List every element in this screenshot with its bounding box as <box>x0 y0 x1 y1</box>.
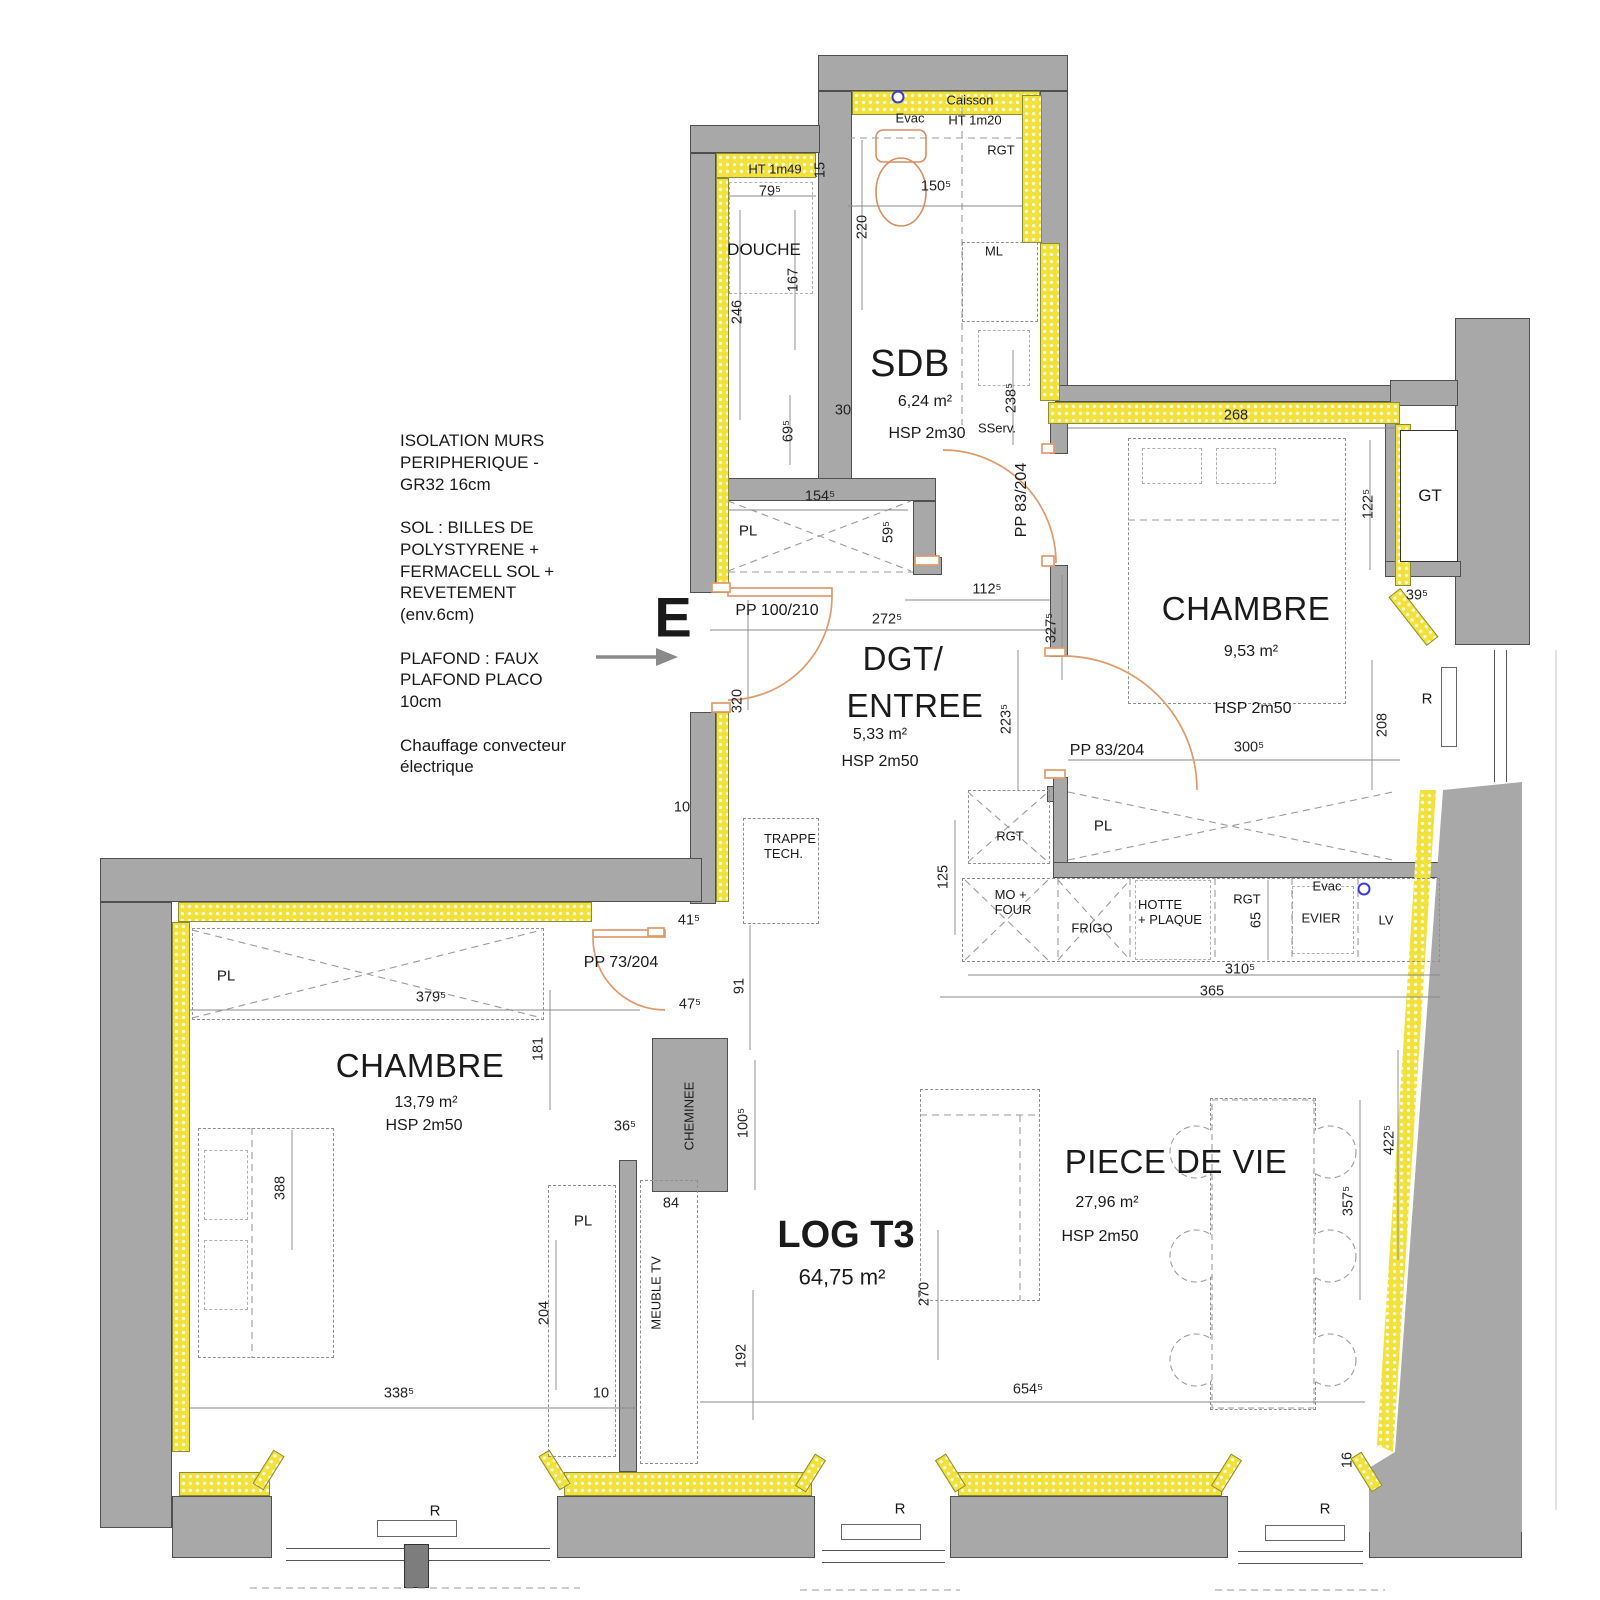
dim-300-5: 300⁵ <box>1234 740 1264 757</box>
room-title-dgt-1: DGT/ <box>863 640 944 678</box>
label-cheminee: CHEMINEE <box>683 1082 698 1151</box>
label-rgt-sdb: RGT <box>987 144 1014 159</box>
jamb <box>648 928 664 936</box>
dim-122-5: 122⁵ <box>1361 489 1378 519</box>
porte-entree-vantail <box>728 588 832 596</box>
room-height-sdb: HSP 2m30 <box>888 425 965 443</box>
label-hotte: HOTTE + PLAQUE <box>1138 898 1202 928</box>
jamb <box>712 703 730 712</box>
label-gt: GT <box>1418 486 1442 506</box>
dim-204: 204 <box>537 1301 554 1325</box>
label-radiateur-est: R <box>1422 690 1433 707</box>
room-area-sdb: 6,24 m² <box>898 393 952 411</box>
dim-181: 181 <box>531 1037 548 1061</box>
room-area-chambre-est: 9,53 m² <box>1224 643 1278 661</box>
notes-text: ISOLATION MURS PERIPHERIQUE - GR32 16cm … <box>400 430 600 778</box>
label-frigo: FRIGO <box>1071 922 1112 937</box>
dim-15: 15 <box>813 162 830 178</box>
jamb <box>915 556 939 565</box>
dim-220: 220 <box>855 215 872 239</box>
room-area-piece-de-vie: 27,96 m² <box>1075 1194 1138 1212</box>
dim-223-5: 223⁵ <box>999 704 1016 734</box>
dim-422-5: 422⁵ <box>1382 1125 1399 1155</box>
dim-150-5: 150⁵ <box>921 179 951 196</box>
dim-10-dgt: 10 <box>674 800 690 817</box>
dim-272-5: 272⁵ <box>872 612 902 629</box>
dim-65: 65 <box>1249 912 1266 928</box>
room-title-chambre-est: CHAMBRE <box>1162 590 1331 628</box>
wc-icon <box>876 130 926 226</box>
dim-208: 208 <box>1375 713 1392 737</box>
room-title-piece-de-vie: PIECE DE VIE <box>1065 1143 1287 1181</box>
dim-192: 192 <box>734 1344 751 1368</box>
dim-379-5: 379⁵ <box>416 990 446 1007</box>
dim-238-5: 238⁵ <box>1004 383 1021 413</box>
room-height-piece-de-vie: HSP 2m50 <box>1061 1228 1138 1246</box>
dim-327-5: 327⁵ <box>1044 613 1061 643</box>
dim-365: 365 <box>1200 984 1224 1001</box>
room-area-chambre-ouest: 13,79 m² <box>394 1094 457 1112</box>
door-label-entree: PP 100/210 <box>735 602 818 620</box>
logement-area: 64,75 m² <box>799 1264 886 1289</box>
label-pl-chambre-est: PL <box>1094 817 1112 834</box>
dim-100-5: 100⁵ <box>736 1108 753 1138</box>
label-pl-chambre-ouest: PL <box>217 967 235 984</box>
label-pl-salon: PL <box>574 1212 592 1229</box>
dim-268: 268 <box>1224 408 1248 425</box>
door-arc-sserv <box>943 450 1056 563</box>
label-mo-four: MO + FOUR <box>995 888 1032 918</box>
dim-79-5: 79⁵ <box>759 184 781 201</box>
label-meuble-tv: MEUBLE TV <box>650 1256 665 1329</box>
label-rgt-plan: RGT <box>1233 893 1260 908</box>
room-title-dgt-2: ENTREE <box>847 687 984 725</box>
douche-hauteur: HT 1m49 <box>748 163 801 178</box>
label-radiateur-bay1: R <box>430 1502 441 1519</box>
door-arc-chambre-ouest <box>593 938 665 1010</box>
label-pl-sdb: PL <box>739 522 757 539</box>
entrance-marker: E <box>654 585 691 650</box>
door-label-sserv: PP 83/204 <box>1013 463 1031 537</box>
label-radiateur-bay3: R <box>1320 1500 1331 1517</box>
label-evac-cuisine: Evac <box>1313 880 1342 895</box>
logement-title: LOG T3 <box>777 1214 914 1258</box>
dim-246: 246 <box>730 300 747 324</box>
cross-rgt-cuisine <box>968 792 1048 862</box>
evac-point-sdb <box>893 92 904 103</box>
door-label-chambre-est: PP 83/204 <box>1070 742 1144 760</box>
dim-30: 30 <box>835 403 851 420</box>
jamb <box>1045 648 1065 656</box>
dim-47-5: 47⁵ <box>679 997 701 1014</box>
label-lv: LV <box>1379 914 1394 929</box>
dim-41-5: 41⁵ <box>678 913 700 930</box>
dim-338-5: 338⁵ <box>384 1386 414 1403</box>
dim-39-5: 39⁵ <box>1406 588 1428 605</box>
dim-320: 320 <box>730 689 747 713</box>
label-radiateur-bay2: R <box>895 1500 906 1517</box>
label-sserv: SServ. <box>978 422 1016 437</box>
floor-plan: ISOLATION MURS PERIPHERIQUE - GR32 16cm … <box>0 0 1600 1600</box>
jamb <box>1045 770 1065 778</box>
door-label-chambre-ouest: PP 73/204 <box>584 954 658 972</box>
label-ml: ML <box>985 245 1003 260</box>
door-arc-chambre-est <box>1063 656 1197 790</box>
label-rgt-colonne: RGT <box>996 830 1023 845</box>
dim-154-5: 154⁵ <box>805 489 835 506</box>
evac-point-cuisine <box>1359 884 1370 895</box>
cross-placard-chambre-est <box>1068 792 1393 860</box>
dim-84: 84 <box>663 1196 679 1213</box>
label-caisson-ht: HT 1m20 <box>948 114 1001 129</box>
dim-91: 91 <box>732 978 749 994</box>
dim-59-5: 59⁵ <box>881 521 898 543</box>
room-height-dgt: HSP 2m50 <box>841 753 918 771</box>
seuils-exterieurs <box>250 1588 1385 1590</box>
dim-112-5: 112⁵ <box>972 582 1001 599</box>
room-area-dgt: 5,33 m² <box>853 726 907 744</box>
dim-125: 125 <box>936 865 953 889</box>
entrance-arrow-icon <box>596 648 678 666</box>
jamb <box>1042 444 1054 453</box>
room-height-chambre-ouest: HSP 2m50 <box>385 1117 462 1135</box>
room-title-douche: DOUCHE <box>727 240 801 260</box>
label-trappe: TRAPPE TECH. <box>764 832 816 862</box>
jamb <box>1042 556 1054 566</box>
dim-310-5: 310⁵ <box>1225 962 1255 979</box>
room-title-sdb: SDB <box>870 343 950 387</box>
room-title-chambre-ouest: CHAMBRE <box>336 1047 505 1085</box>
label-evac-sdb: Evac <box>896 112 925 127</box>
dim-36-5: 36⁵ <box>614 1119 636 1136</box>
dim-10-bas: 10 <box>593 1386 609 1403</box>
jamb <box>712 583 730 592</box>
dim-388: 388 <box>273 1176 290 1200</box>
label-evier: EVIER <box>1301 912 1340 927</box>
dim-357-5: 357⁵ <box>1341 1186 1358 1216</box>
room-height-chambre-est: HSP 2m50 <box>1214 700 1291 718</box>
dim-270: 270 <box>917 1282 934 1306</box>
dim-654-5: 654⁵ <box>1013 1382 1043 1399</box>
dim-16: 16 <box>1340 1452 1357 1468</box>
dim-69-5: 69⁵ <box>781 420 798 442</box>
label-caisson: Caisson <box>947 94 994 109</box>
dim-167: 167 <box>786 268 803 292</box>
cross-placard-chambre-ouest <box>192 930 542 1018</box>
